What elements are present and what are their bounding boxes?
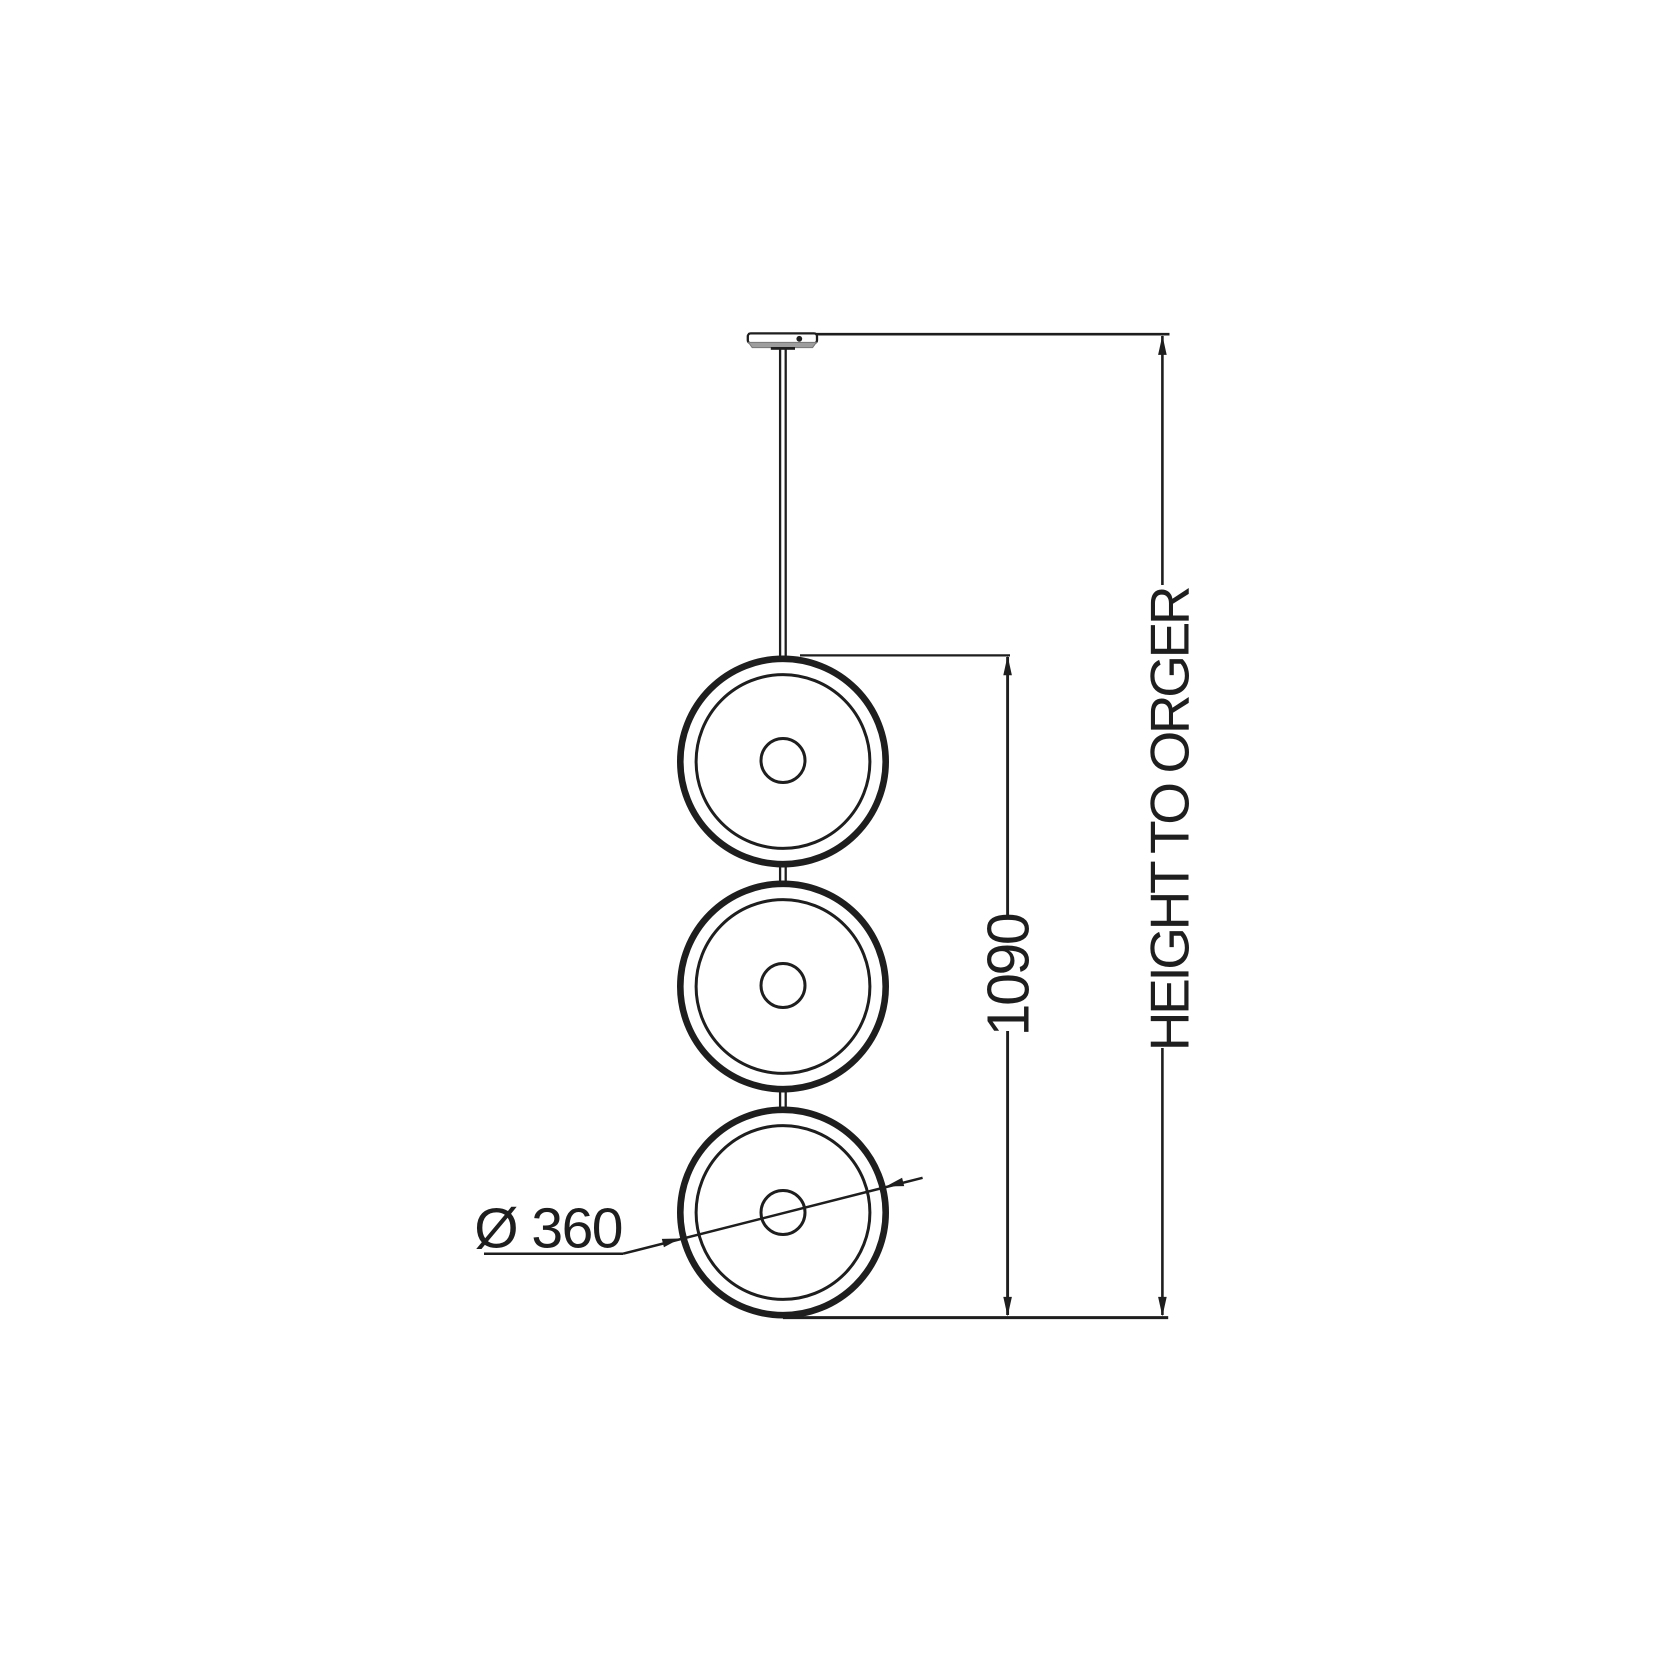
svg-text:HEIGHT TO ORGER: HEIGHT TO ORGER (1139, 587, 1201, 1051)
svg-text:Ø 360: Ø 360 (474, 1197, 622, 1261)
svg-text:1090: 1090 (975, 914, 1041, 1036)
